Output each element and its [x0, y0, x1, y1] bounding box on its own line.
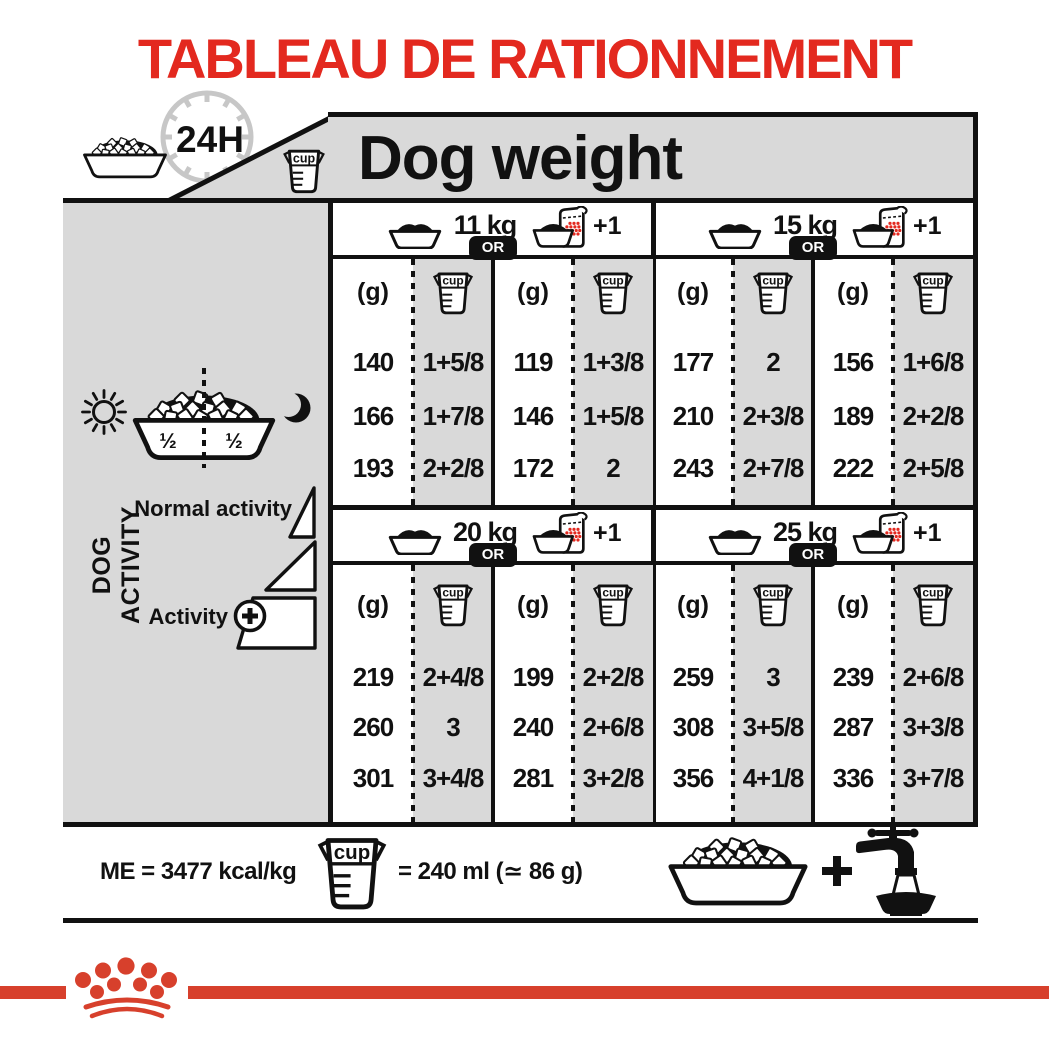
page-title: TABLEAU DE RATIONNEMENT	[0, 26, 1049, 91]
cup-equivalence-label: = 240 ml (≃ 86 g)	[398, 858, 582, 886]
cup-value: 2+2/8	[413, 453, 493, 483]
bowl-plus-pouch-icon	[851, 206, 913, 254]
cup-value: 2	[573, 453, 653, 483]
grams-value: 259	[653, 662, 733, 692]
plus-icon	[820, 854, 854, 888]
bowl-split-dotted-line	[202, 368, 206, 468]
bowl-plus-pouch-icon	[531, 206, 593, 254]
half-right-label: ½	[218, 430, 250, 454]
cup-value: 3+3/8	[893, 712, 973, 742]
weight-group-header-25kg: 25 kg +1 OR	[653, 510, 973, 561]
dotted-divider	[891, 565, 895, 822]
band-top-border	[328, 112, 978, 117]
pair-divider	[491, 259, 495, 505]
or-badge: OR	[789, 236, 837, 260]
cup-icon	[283, 146, 325, 196]
dotted-divider	[411, 565, 415, 822]
grams-unit: (g)	[813, 278, 893, 307]
grams-value: 222	[813, 453, 893, 483]
brand-stripe-left	[0, 986, 66, 999]
cup-value: 2	[733, 347, 813, 377]
cup-value: 2+3/8	[733, 401, 813, 431]
grams-value: 189	[813, 401, 893, 431]
or-badge: OR	[789, 543, 837, 567]
or-badge: OR	[469, 236, 517, 260]
grams-unit: (g)	[653, 278, 733, 307]
rationing-table-panel: cup	[0, 0, 1049, 1049]
grams-value: 219	[333, 662, 413, 692]
cup-value: 3+4/8	[413, 763, 493, 793]
cup-icon	[753, 269, 793, 317]
grams-value: 287	[813, 712, 893, 742]
cup-value: 3	[733, 662, 813, 692]
weight-group-header-11kg: 11 kg +1 OR	[333, 203, 653, 255]
grams-value: 308	[653, 712, 733, 742]
water-tap-icon	[850, 824, 936, 916]
sun-icon	[81, 389, 127, 435]
grams-value: 140	[333, 347, 413, 377]
cup-value: 3+7/8	[893, 763, 973, 793]
dotted-divider	[571, 565, 575, 822]
dotted-divider	[731, 259, 735, 505]
cup-icon	[913, 269, 953, 317]
grams-value: 172	[493, 453, 573, 483]
cup-value: 1+7/8	[413, 401, 493, 431]
grams-value: 356	[653, 763, 733, 793]
royal-canin-crown-logo	[70, 956, 185, 1020]
metabolizable-energy-label: ME = 3477 kcal/kg	[100, 858, 296, 886]
cup-value: 2+2/8	[893, 401, 973, 431]
grams-value: 166	[333, 401, 413, 431]
pair-divider	[491, 565, 495, 822]
cup-value: 2+6/8	[893, 662, 973, 692]
pair-divider	[811, 565, 815, 822]
half-left-label: ½	[152, 430, 184, 454]
cup-value: 2+2/8	[573, 662, 653, 692]
kibble-bowl-icon	[80, 127, 170, 193]
plus-one-label: +1	[913, 519, 963, 548]
cup-value: 4+1/8	[733, 763, 813, 793]
bowl-plus-pouch-icon	[851, 512, 913, 560]
grams-value: 240	[493, 712, 573, 742]
cup-value: 1+5/8	[413, 347, 493, 377]
dotted-divider	[891, 259, 895, 505]
plus-circle-icon	[232, 598, 268, 634]
plus-one-label: +1	[593, 212, 643, 241]
dotted-divider	[731, 565, 735, 822]
grams-value: 260	[333, 712, 413, 742]
table-right-border	[973, 112, 978, 827]
grams-value: 336	[813, 763, 893, 793]
grams-value: 243	[653, 453, 733, 483]
cup-icon	[433, 269, 473, 317]
grams-value: 301	[333, 763, 413, 793]
cup-icon	[913, 581, 953, 629]
cup-icon	[593, 581, 633, 629]
or-badge: OR	[469, 543, 517, 567]
bowl-plus-pouch-icon	[531, 512, 593, 560]
cup-icon	[593, 269, 633, 317]
cup-value: 3+5/8	[733, 712, 813, 742]
cup-icon	[433, 581, 473, 629]
cup-value: 1+6/8	[893, 347, 973, 377]
table-bottom-border	[63, 822, 978, 827]
cup-value: 3+2/8	[573, 763, 653, 793]
grams-value: 210	[653, 401, 733, 431]
grams-value: 146	[493, 401, 573, 431]
grams-value: 193	[333, 453, 413, 483]
grams-value: 119	[493, 347, 573, 377]
cup-value: 1+5/8	[573, 401, 653, 431]
dog-weight-title: Dog weight	[358, 117, 682, 200]
grams-unit: (g)	[813, 591, 893, 620]
cup-value: 2+7/8	[733, 453, 813, 483]
cup-icon	[314, 832, 390, 914]
grams-value: 239	[813, 662, 893, 692]
activity-plus-label: Activity	[110, 604, 228, 630]
cup-value: 2+5/8	[893, 453, 973, 483]
cup-value: 1+3/8	[573, 347, 653, 377]
cup-icon	[753, 581, 793, 629]
grams-unit: (g)	[653, 591, 733, 620]
grams-value: 281	[493, 763, 573, 793]
cup-value: 2+4/8	[413, 662, 493, 692]
footer-strip-border	[63, 918, 978, 923]
grams-unit: (g)	[333, 278, 413, 307]
grams-unit: (g)	[493, 278, 573, 307]
dotted-divider	[571, 259, 575, 505]
brand-stripe-right	[188, 986, 1049, 999]
grams-value: 199	[493, 662, 573, 692]
grams-unit: (g)	[493, 591, 573, 620]
pair-divider	[811, 259, 815, 505]
grams-value: 177	[653, 347, 733, 377]
kibble-bowl-icon	[658, 833, 818, 917]
weight-group-header-20kg: 20 kg +1 OR	[333, 510, 653, 561]
cup-value: 2+6/8	[573, 712, 653, 742]
grams-unit: (g)	[333, 591, 413, 620]
plus-one-label: +1	[913, 212, 963, 241]
moon-icon	[279, 391, 313, 425]
cup-value: 3	[413, 712, 493, 742]
plus-one-label: +1	[593, 519, 643, 548]
dotted-divider	[411, 259, 415, 505]
grams-value: 156	[813, 347, 893, 377]
weight-group-header-15kg: 15 kg +1 OR	[653, 203, 973, 255]
